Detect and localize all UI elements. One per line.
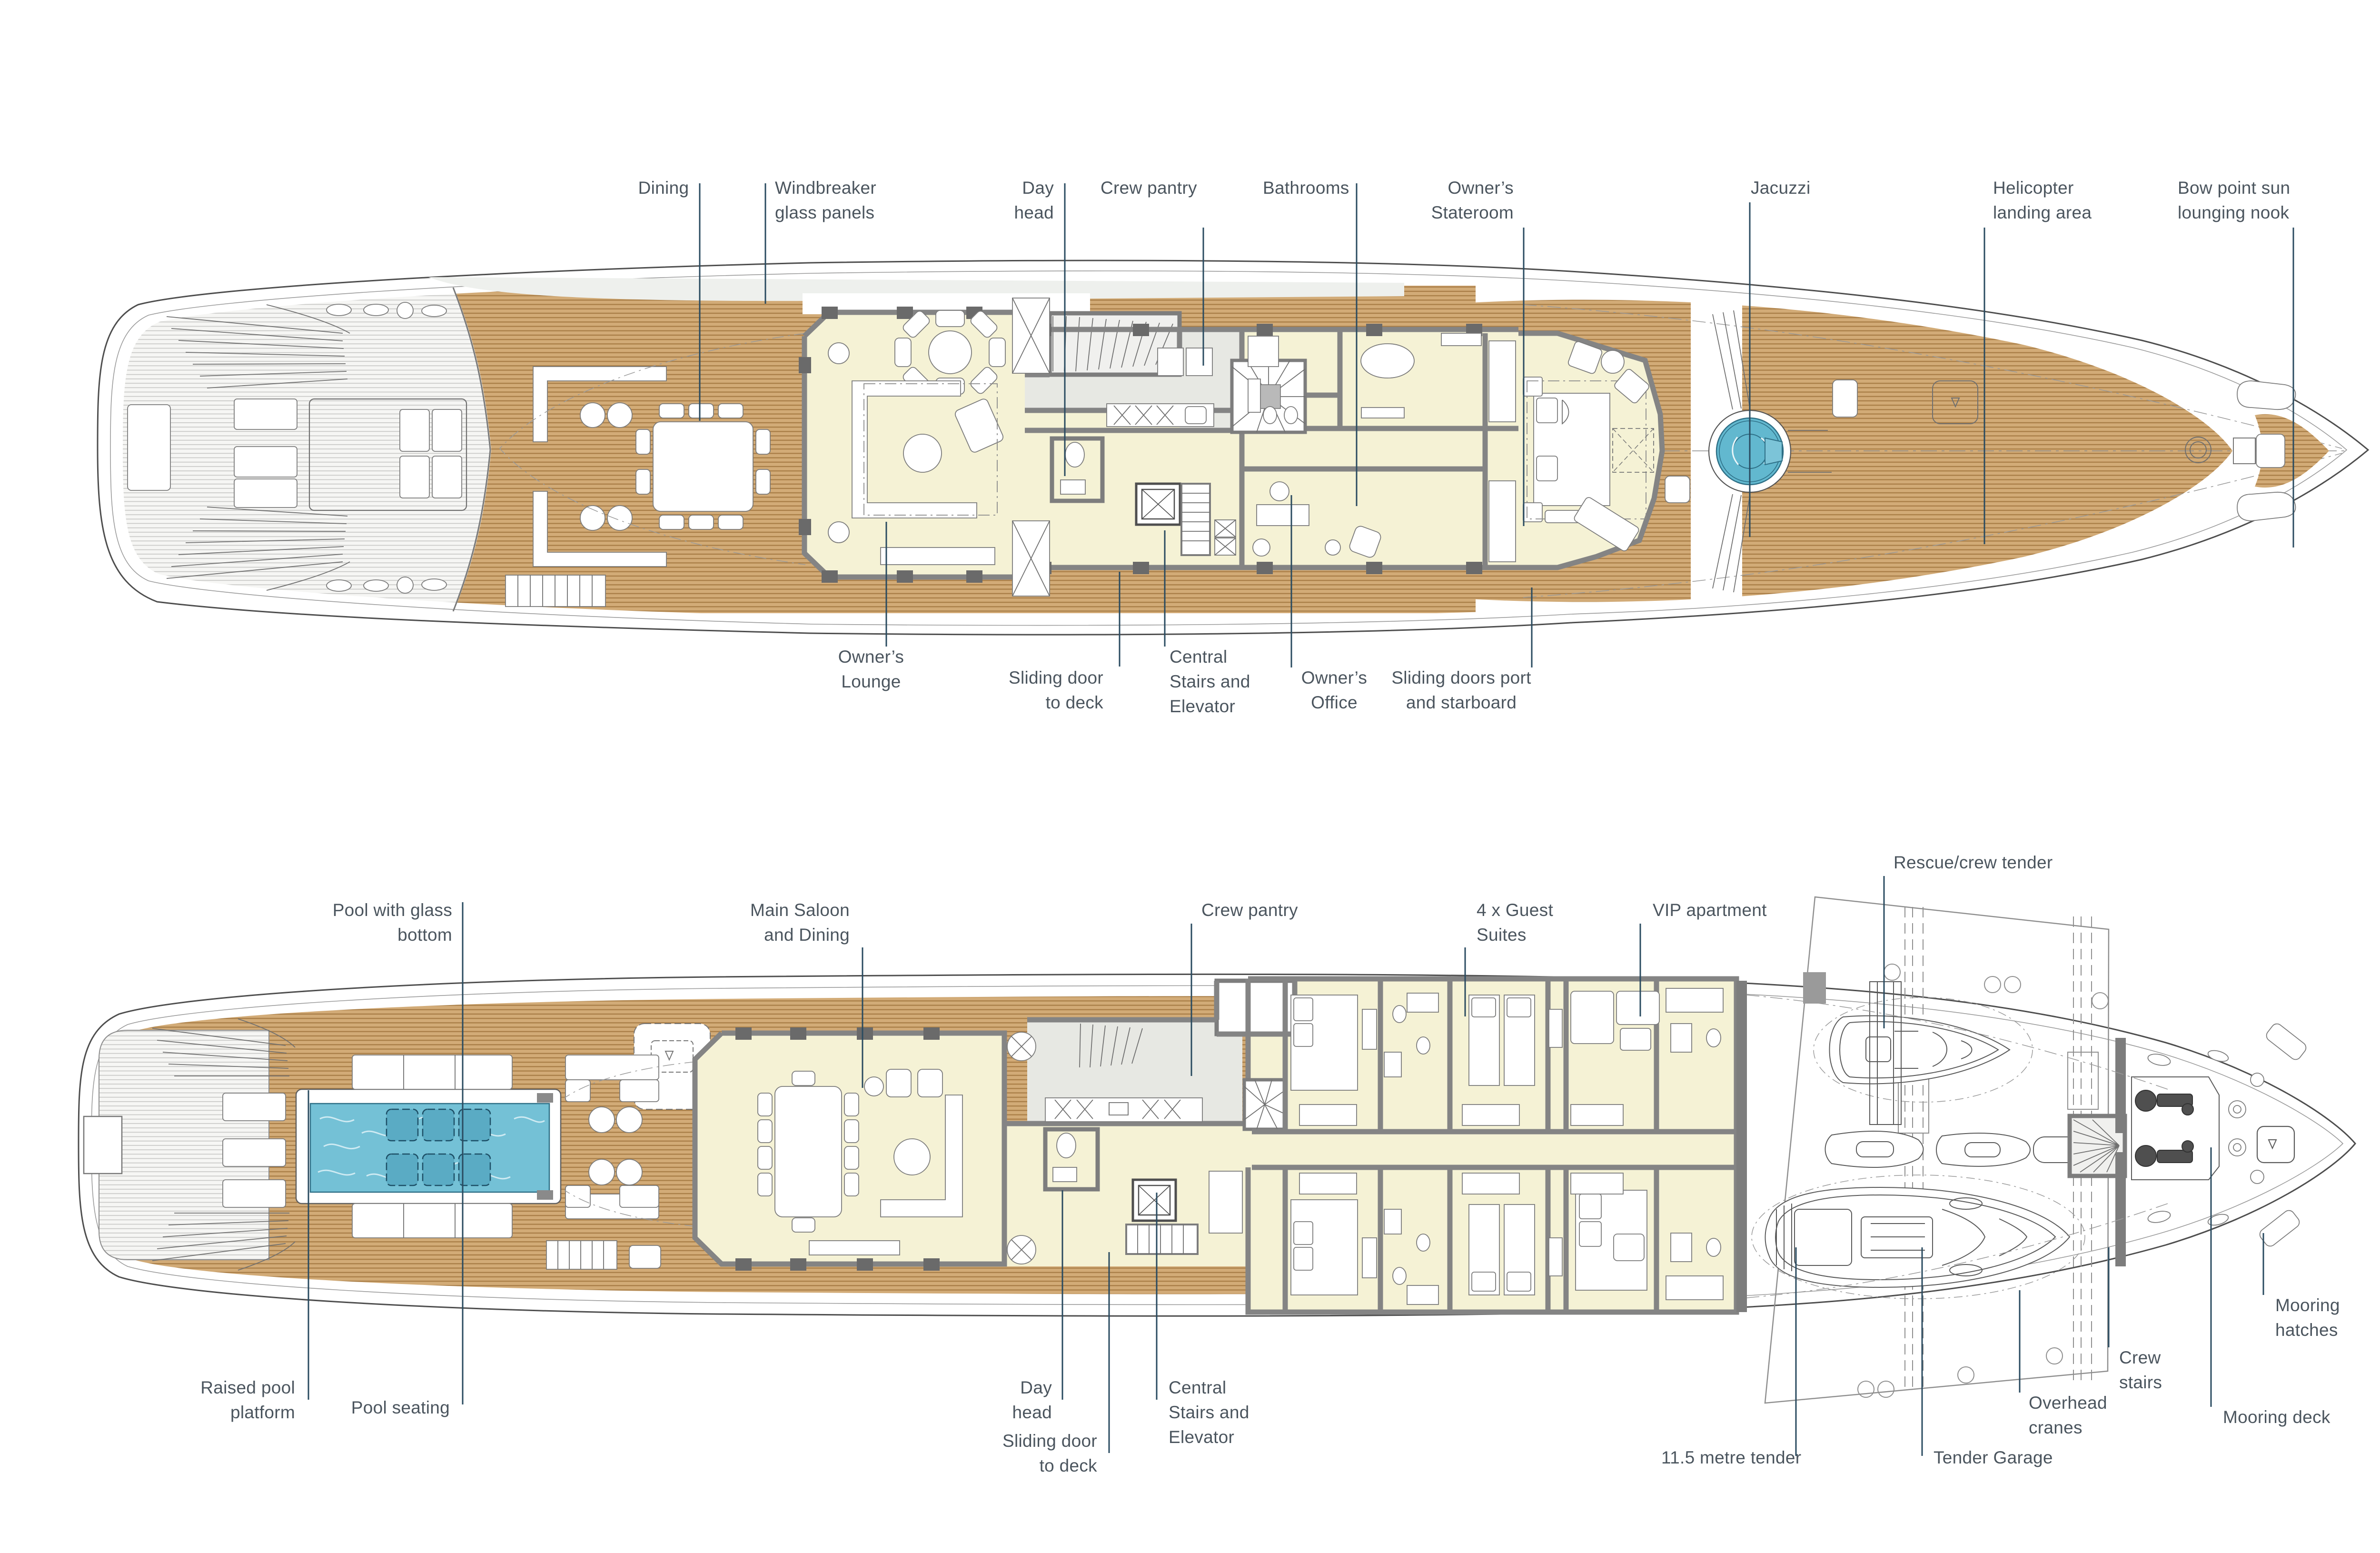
svg-text:hatches: hatches: [2275, 1320, 2338, 1340]
svg-text:Owner’s: Owner’s: [1448, 178, 1514, 198]
svg-text:Bow point sun: Bow point sun: [2178, 178, 2290, 198]
svg-text:Day: Day: [1020, 1378, 1052, 1397]
svg-text:Pool with glass: Pool with glass: [333, 900, 452, 920]
svg-text:Helicopter: Helicopter: [1993, 178, 2074, 198]
svg-text:Jacuzzi: Jacuzzi: [1751, 178, 1810, 198]
svg-text:head: head: [1012, 1403, 1052, 1422]
svg-text:glass panels: glass panels: [775, 203, 874, 222]
svg-text:Overhead: Overhead: [2029, 1393, 2107, 1413]
svg-text:Rescue/crew tender: Rescue/crew tender: [1894, 853, 2053, 872]
svg-text:Raised pool: Raised pool: [200, 1378, 295, 1397]
svg-text:Sliding door: Sliding door: [1002, 1431, 1097, 1451]
svg-text:Crew: Crew: [2119, 1348, 2161, 1367]
svg-text:platform: platform: [230, 1403, 295, 1422]
svg-text:to deck: to deck: [1040, 1456, 1098, 1475]
svg-text:Elevator: Elevator: [1170, 697, 1235, 716]
svg-text:Bathrooms: Bathrooms: [1263, 178, 1349, 198]
svg-text:landing area: landing area: [1993, 203, 2092, 222]
svg-text:Day: Day: [1022, 178, 1054, 198]
svg-text:Crew pantry: Crew pantry: [1201, 900, 1298, 920]
svg-text:and starboard: and starboard: [1406, 693, 1517, 712]
svg-text:lounging nook: lounging nook: [2178, 203, 2290, 222]
svg-text:Suites: Suites: [1477, 925, 1527, 945]
svg-text:Central: Central: [1170, 647, 1227, 667]
svg-text:Office: Office: [1311, 693, 1358, 712]
svg-text:Stateroom: Stateroom: [1431, 203, 1514, 222]
svg-text:bottom: bottom: [397, 925, 452, 945]
svg-text:Tender Garage: Tender Garage: [1934, 1448, 2053, 1467]
svg-text:to deck: to deck: [1046, 693, 1104, 712]
svg-text:Dining: Dining: [638, 178, 689, 198]
svg-text:11.5 metre tender: 11.5 metre tender: [1661, 1448, 1801, 1467]
svg-text:Elevator: Elevator: [1169, 1427, 1234, 1447]
svg-text:VIP apartment: VIP apartment: [1653, 900, 1767, 920]
svg-text:Main Saloon: Main Saloon: [750, 900, 850, 920]
svg-text:Sliding door: Sliding door: [1009, 668, 1103, 687]
svg-text:Central: Central: [1169, 1378, 1226, 1397]
svg-text:Windbreaker: Windbreaker: [775, 178, 876, 198]
svg-text:Mooring: Mooring: [2275, 1295, 2340, 1315]
svg-text:Owner’s: Owner’s: [1301, 668, 1368, 687]
svg-text:Owner’s: Owner’s: [838, 647, 904, 667]
svg-text:cranes: cranes: [2029, 1418, 2082, 1437]
svg-text:and Dining: and Dining: [764, 925, 850, 945]
svg-text:Pool seating: Pool seating: [351, 1398, 450, 1417]
svg-text:head: head: [1014, 203, 1054, 222]
svg-text:Mooring deck: Mooring deck: [2223, 1407, 2330, 1427]
svg-text:Stairs and: Stairs and: [1170, 672, 1250, 691]
svg-text:Sliding doors port: Sliding doors port: [1391, 668, 1531, 687]
svg-text:Crew pantry: Crew pantry: [1101, 178, 1197, 198]
svg-text:4 x Guest: 4 x Guest: [1477, 900, 1553, 920]
svg-text:Stairs and: Stairs and: [1169, 1403, 1249, 1422]
svg-text:Lounge: Lounge: [841, 672, 901, 691]
svg-text:stairs: stairs: [2119, 1373, 2162, 1392]
